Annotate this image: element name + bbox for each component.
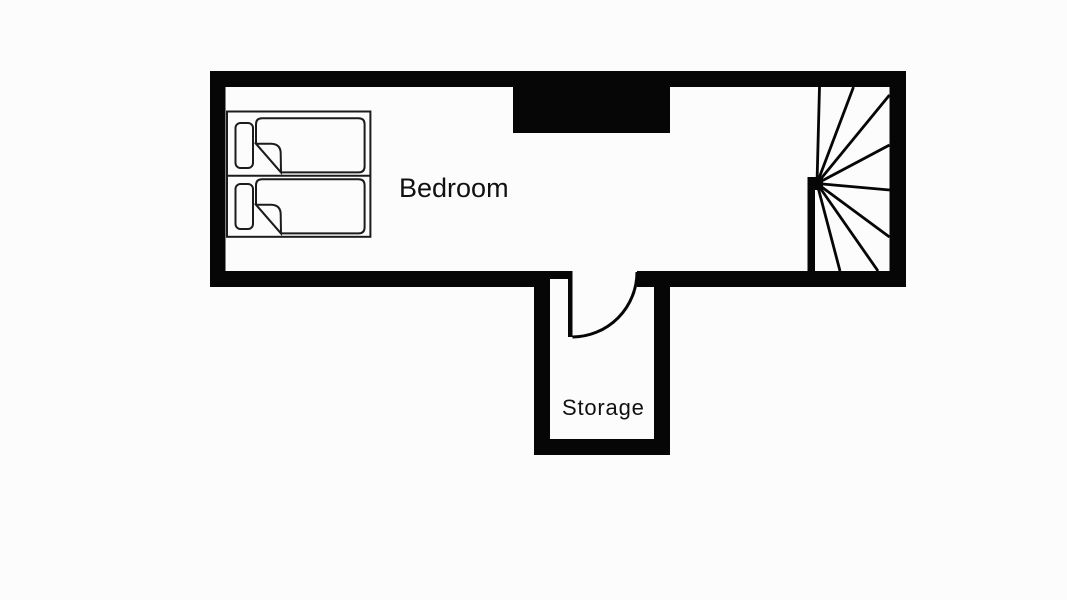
svg-text:Bedroom: Bedroom	[399, 173, 509, 203]
svg-text:Storage: Storage	[562, 395, 645, 420]
